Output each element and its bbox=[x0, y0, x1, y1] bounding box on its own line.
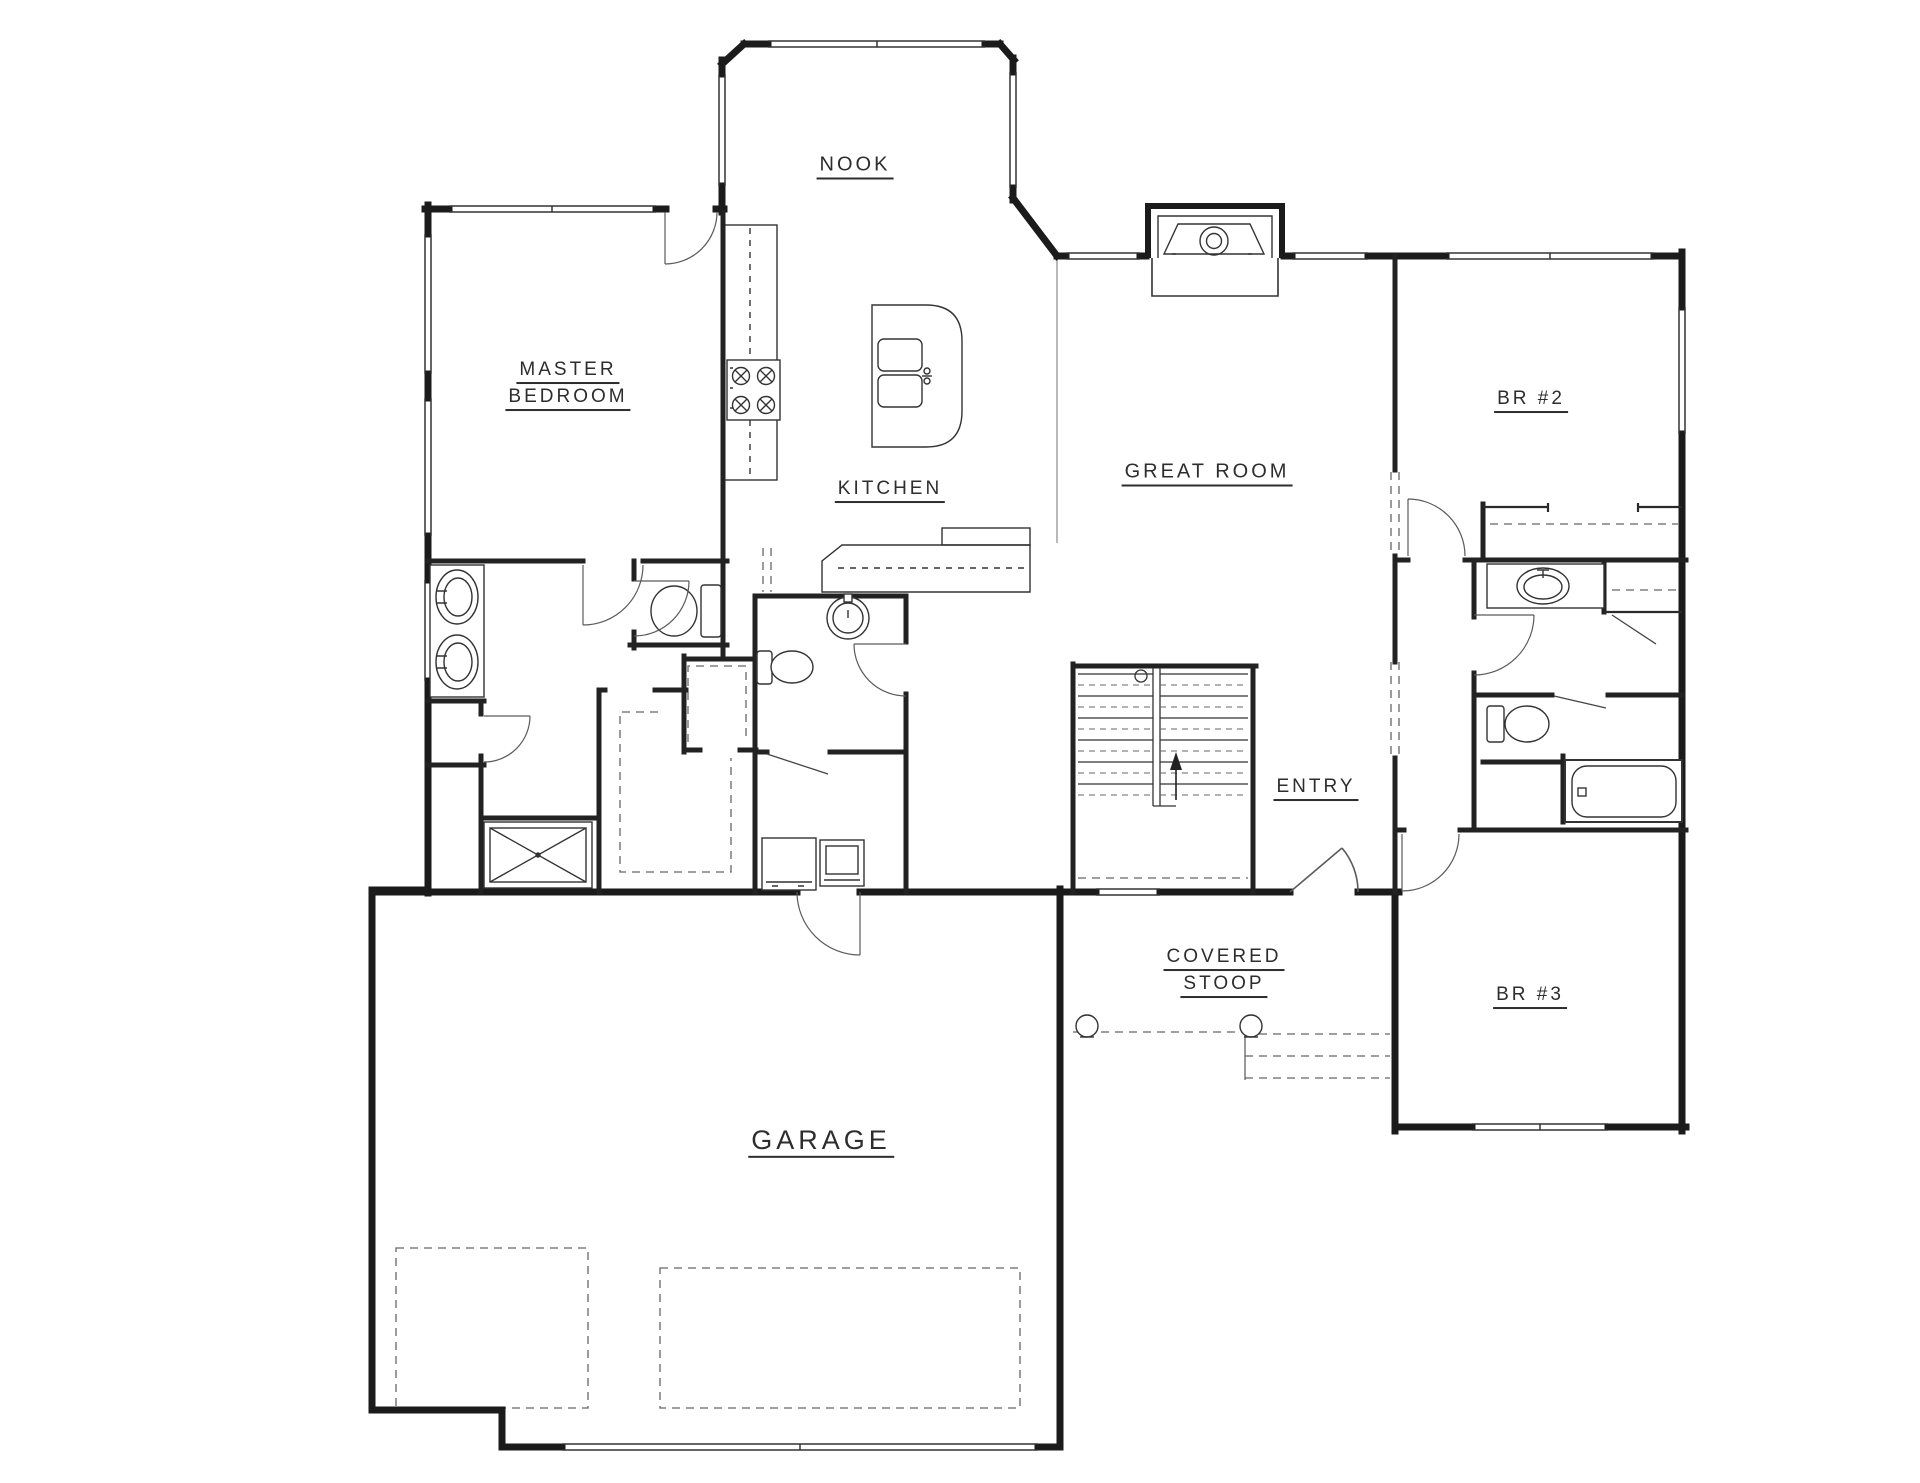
dashed-overhead-lines bbox=[396, 472, 1678, 1408]
fixtures bbox=[430, 305, 1682, 1037]
cased-opening-kitchen-hall bbox=[763, 548, 771, 592]
master-vanity-double-sink-icon bbox=[430, 565, 484, 697]
room-label-br2: BR #2 bbox=[1494, 389, 1568, 413]
room-label-garage: GARAGE bbox=[748, 1126, 894, 1158]
angled-wall bbox=[1013, 198, 1057, 256]
br3-bottom-window bbox=[1472, 1124, 1608, 1130]
linen-door bbox=[484, 716, 530, 762]
master-patio-door bbox=[665, 212, 717, 264]
nook-top-window bbox=[768, 41, 985, 47]
kitchen-island-sink-icon bbox=[872, 305, 962, 447]
powder-door bbox=[854, 644, 906, 696]
room-label-covered-stoop-line1: COVERED bbox=[1164, 947, 1285, 971]
room-label-covered-stoop-line2: STOOP bbox=[1180, 974, 1267, 998]
br2-top-window bbox=[1446, 253, 1654, 259]
floor-plan-page: NOOKMASTERBEDROOMKITCHENGREAT ROOMBR #2E… bbox=[0, 0, 1920, 1483]
kitchen-sink-box bbox=[942, 528, 1030, 545]
linen-walls bbox=[428, 701, 484, 892]
fireplace-flue-inner bbox=[1207, 234, 1222, 249]
room-label-kitchen: KITCHEN bbox=[835, 479, 945, 503]
front-door bbox=[1290, 848, 1358, 892]
powder-toilet-icon bbox=[757, 651, 813, 684]
greatroom-window-left bbox=[1066, 253, 1140, 259]
fireplace-inner-box bbox=[1158, 216, 1272, 258]
stoop-column-icons bbox=[1076, 1015, 1262, 1037]
nook-right-window bbox=[1010, 72, 1016, 188]
range-icon bbox=[727, 360, 780, 420]
floor-plan-drawing bbox=[0, 0, 1920, 1483]
nook-left-window bbox=[719, 74, 725, 186]
cased-opening-great-room-hall bbox=[1391, 472, 1399, 554]
garage-door-panel bbox=[562, 1444, 1038, 1450]
dryer-icon bbox=[820, 840, 864, 886]
room-label-nook: NOOK bbox=[817, 155, 894, 180]
br3-door bbox=[1402, 834, 1459, 891]
master-left-window-2 bbox=[425, 398, 431, 536]
fireplace-firebox bbox=[1164, 224, 1264, 254]
br2-door bbox=[1408, 499, 1465, 556]
garage-bay-outline-right bbox=[660, 1268, 1020, 1408]
bath-pocket-door bbox=[1554, 696, 1606, 708]
bathtub-icon bbox=[1565, 760, 1682, 822]
bath-toilet-icon bbox=[1487, 706, 1549, 742]
room-label-master-bedroom-line2: BEDROOM bbox=[505, 387, 630, 411]
entry-window bbox=[1096, 889, 1160, 895]
fireplace-flue-outer bbox=[1200, 227, 1228, 255]
stoop-steps bbox=[1245, 1034, 1390, 1078]
stair-newel-post bbox=[1135, 670, 1147, 682]
br2-right-window bbox=[1679, 307, 1685, 434]
door-swings bbox=[484, 212, 1534, 955]
tub-toilet-divider bbox=[1483, 756, 1563, 822]
washer-icon bbox=[762, 838, 816, 890]
laundry-slider-door bbox=[767, 754, 828, 774]
stair-up-arrow-head bbox=[1170, 752, 1182, 770]
exterior-walls bbox=[372, 44, 1686, 1447]
room-label-br3: BR #3 bbox=[1493, 985, 1567, 1009]
greatroom-window-right bbox=[1292, 253, 1368, 259]
room-label-master-bedroom-line1: MASTER bbox=[516, 360, 619, 384]
stair-divider bbox=[1153, 668, 1176, 806]
bath-vanity-sink-icon bbox=[1487, 564, 1604, 608]
master-top-window bbox=[449, 206, 656, 212]
room-label-great-room: GREAT ROOM bbox=[1122, 462, 1293, 487]
master-left-window-1 bbox=[425, 234, 431, 374]
shower-icon bbox=[484, 822, 592, 888]
garage-entry-door bbox=[797, 892, 860, 955]
powder-sink-icon bbox=[827, 594, 869, 639]
cased-opening-hall-lower bbox=[1391, 662, 1399, 756]
room-label-entry: ENTRY bbox=[1273, 777, 1358, 801]
br2-closet-front bbox=[1483, 503, 1682, 512]
walk-in-closet-shelves bbox=[620, 712, 731, 872]
fireplace-hearth bbox=[1152, 258, 1278, 296]
fireplace bbox=[1148, 206, 1282, 296]
bath-door bbox=[1474, 615, 1534, 675]
pantry-shelves bbox=[688, 666, 746, 742]
garage-bay-outline-left bbox=[396, 1248, 588, 1408]
stairwell-walls bbox=[1073, 664, 1256, 892]
linen2-door bbox=[1612, 615, 1656, 644]
pantry-walls bbox=[684, 656, 756, 752]
staircase bbox=[1078, 668, 1248, 806]
